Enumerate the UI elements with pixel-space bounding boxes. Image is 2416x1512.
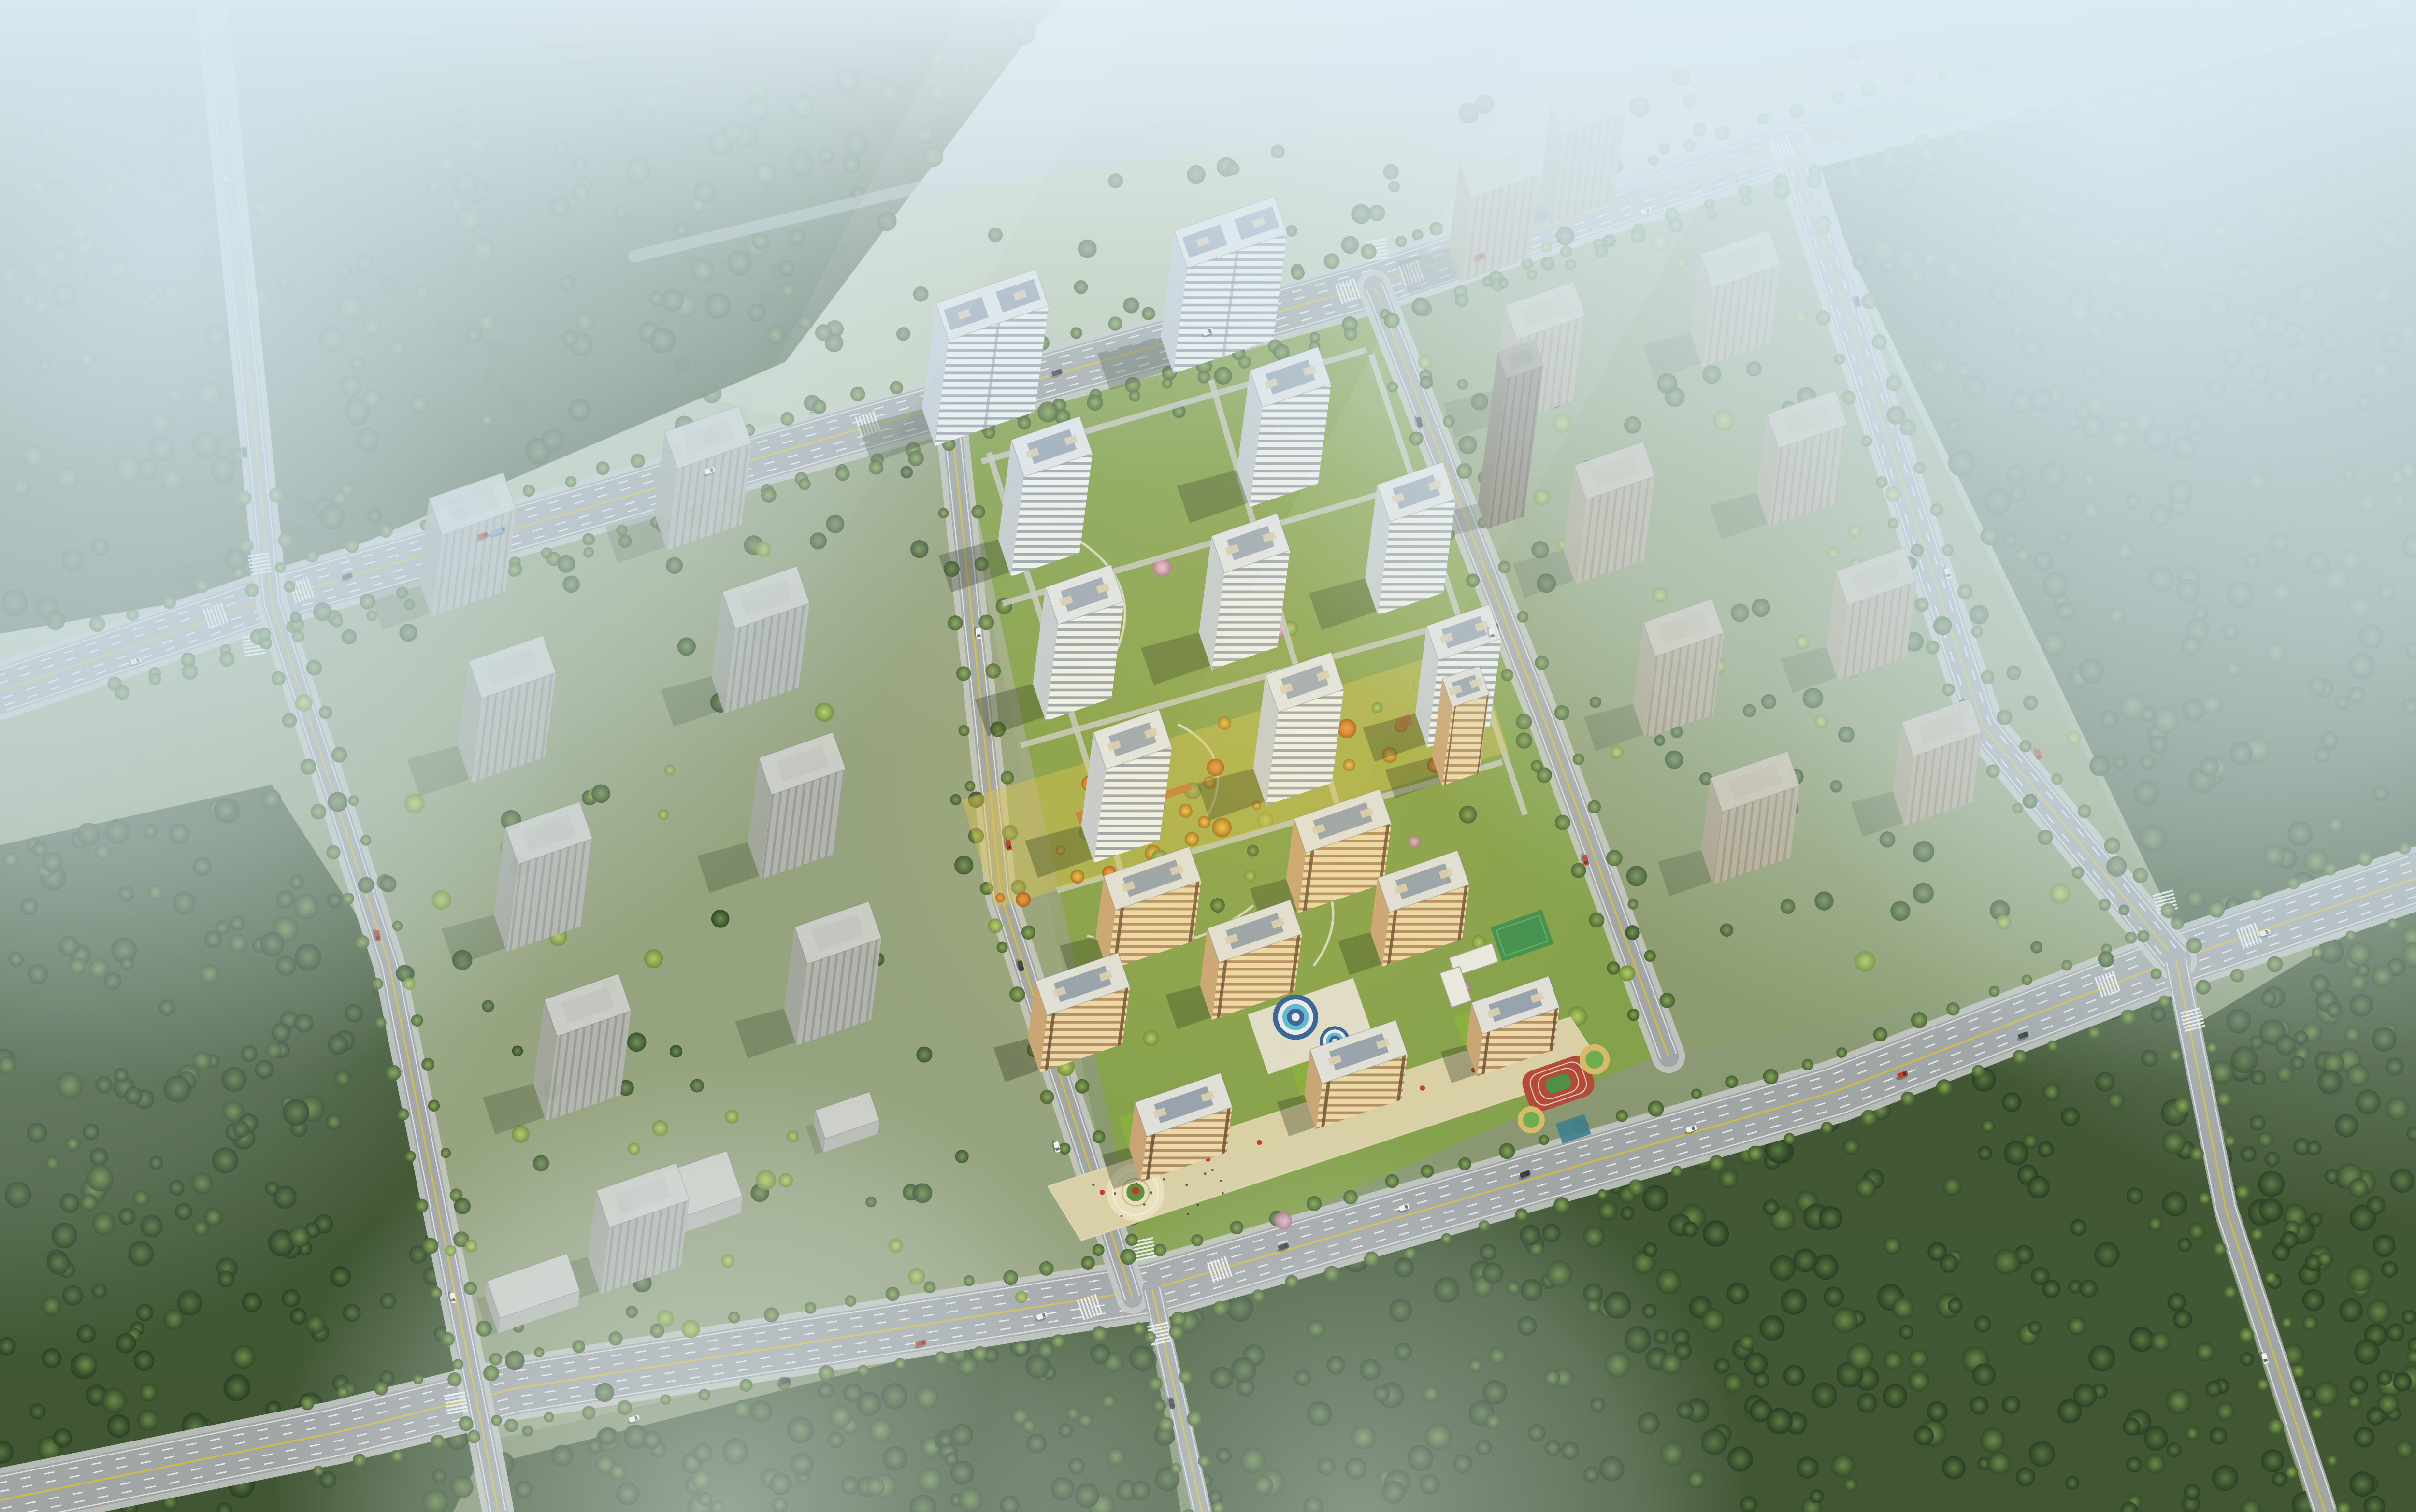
fog-overlays [0, 0, 2416, 1512]
masterplan-render-canvas [0, 0, 2416, 1512]
aerial-masterplan-render [0, 0, 2416, 1512]
